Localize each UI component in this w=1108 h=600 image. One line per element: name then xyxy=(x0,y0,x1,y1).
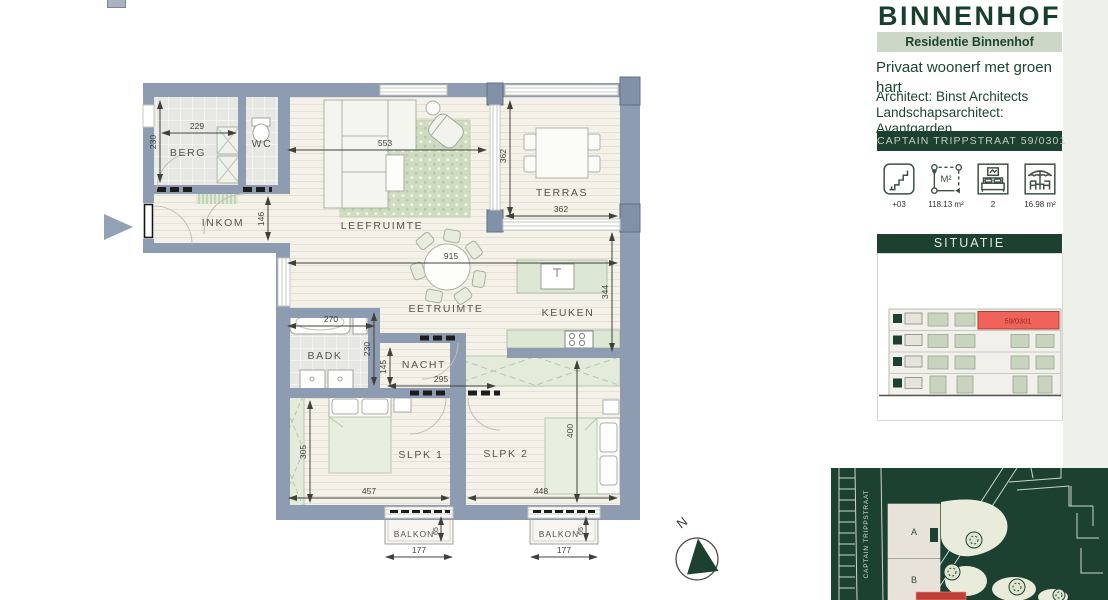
dim-slpk1-w: 457 xyxy=(362,486,376,496)
floor-plan: 229 230 146 553 362 362 915 344 270 230 … xyxy=(0,0,770,600)
stat-floor: +03 xyxy=(876,161,922,219)
dim-badk-w: 270 xyxy=(324,314,338,324)
compass-north-label: N xyxy=(674,514,691,532)
coffee-table xyxy=(386,155,404,191)
dim-nacht-w: 295 xyxy=(434,374,448,384)
wardrobe-slpk2 xyxy=(452,356,620,386)
room-label-eetruimte: EETRUIMTE xyxy=(408,303,483,315)
dim-slpk1-h: 305 xyxy=(298,445,308,459)
room-label-badk: BADK xyxy=(308,350,343,362)
dim-berg-h: 230 xyxy=(148,135,158,149)
side-table xyxy=(426,101,440,115)
dim-slpk2-h: 400 xyxy=(565,424,575,438)
room-label-leefruimte: LEEFRUIMTE xyxy=(341,220,424,232)
dim-eet-w: 915 xyxy=(444,251,458,261)
project-subtitle-badge: Residentie Binnenhof xyxy=(877,32,1062,52)
dim-leef-w: 553 xyxy=(378,138,392,148)
dim-keuken-h: 344 xyxy=(600,285,610,299)
map-block-highlight xyxy=(916,592,966,600)
dim-terras-h: 362 xyxy=(498,149,508,163)
room-label-nacht: NACHT xyxy=(402,359,446,371)
bedrooms-icon xyxy=(975,161,1011,197)
dim-inkom-h: 146 xyxy=(256,212,266,226)
room-label-berg: BERG xyxy=(170,147,206,159)
entrance-arrow-icon xyxy=(104,214,133,240)
svg-text:M²: M² xyxy=(940,174,951,185)
stat-area: M² 118.13 m² xyxy=(923,161,969,219)
entry-door xyxy=(145,205,153,238)
building-elevation: 59/0301 xyxy=(878,254,1062,418)
map-block-a-label: A xyxy=(911,527,917,537)
map-street-label: CAPTAIN TRIPPSTRAAT xyxy=(863,490,870,579)
dim-nacht-h: 145 xyxy=(378,360,388,374)
compass-icon: N xyxy=(674,514,719,580)
stat-area-value: 118.13 m² xyxy=(928,200,963,209)
stove xyxy=(565,331,593,348)
dim-balkon1-w: 177 xyxy=(412,545,426,555)
dim-terras-w: 362 xyxy=(554,204,568,214)
room-label-balkon2: BALKON xyxy=(539,529,580,539)
stat-floor-value: +03 xyxy=(892,200,906,209)
room-label-slpk1: SLPK 1 xyxy=(398,449,443,461)
stairs-icon xyxy=(881,161,917,197)
stat-bedrooms: 2 xyxy=(970,161,1016,219)
stat-bedrooms-value: 2 xyxy=(991,200,995,209)
room-label-wc: WC xyxy=(252,138,273,150)
address-unit-bar: CAPTAIN TRIPPSTRAAT 59/0301 xyxy=(877,131,1062,151)
room-label-inkom: INKOM xyxy=(202,217,244,229)
stat-terrace-value: 16.98 m² xyxy=(1024,200,1056,209)
architect-line: Architect: Binst Architects xyxy=(876,89,1066,105)
room-label-keuken: KEUKEN xyxy=(542,307,595,319)
dim-badk-h: 230 xyxy=(362,342,372,356)
project-title: BINNENHOF xyxy=(876,0,1063,32)
room-label-balkon1: BALKON xyxy=(394,529,435,539)
site-map: A B CAPTAIN TRIPPSTRAAT xyxy=(831,468,1108,600)
situatie-header: SITUATIE xyxy=(877,234,1062,253)
area-icon: M² xyxy=(928,161,964,197)
kitchen-counter xyxy=(507,330,620,348)
architect-info: Architect: Binst Architects Landschapsar… xyxy=(876,89,1066,137)
dim-balkon2-w: 177 xyxy=(557,545,571,555)
room-label-terras: TERRAS xyxy=(536,187,588,199)
stat-terrace: 16.98 m² xyxy=(1017,161,1063,219)
situatie-panel: 59/0301 xyxy=(877,253,1063,421)
dim-slpk2-w: 448 xyxy=(534,486,548,496)
map-block-b-label: B xyxy=(911,575,917,585)
highlighted-unit-label: 59/0301 xyxy=(1004,317,1031,326)
dim-berg-w: 229 xyxy=(190,121,204,131)
unit-stats-row: +03 M² 118.13 m² xyxy=(876,161,1063,219)
terrace-icon xyxy=(1022,161,1058,197)
room-label-slpk2: SLPK 2 xyxy=(483,448,528,460)
